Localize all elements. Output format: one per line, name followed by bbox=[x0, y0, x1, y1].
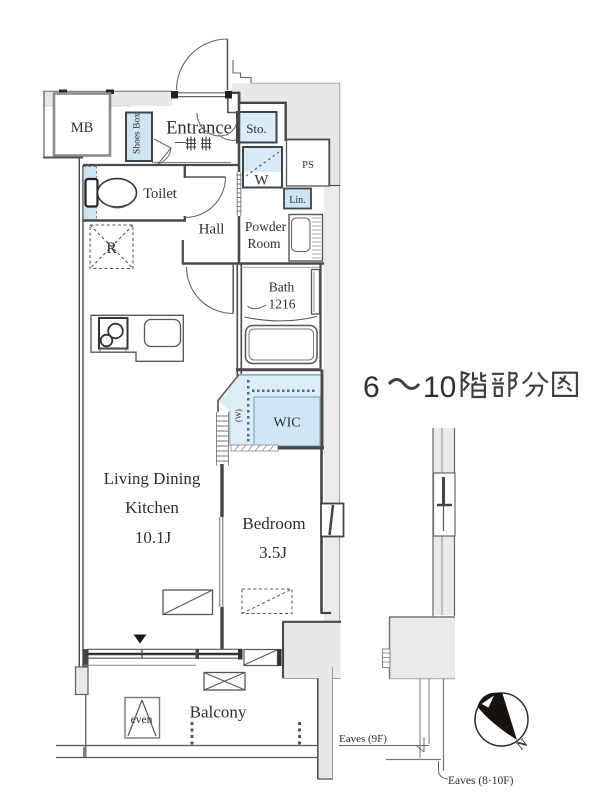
svg-text:Lin.: Lin. bbox=[289, 195, 305, 206]
svg-text:PS: PS bbox=[302, 160, 314, 171]
svg-text:Room: Room bbox=[247, 236, 281, 251]
svg-text:Bath: Bath bbox=[269, 280, 295, 295]
svg-text:Balcony: Balcony bbox=[190, 703, 247, 722]
svg-text:(W): (W) bbox=[234, 409, 243, 422]
svg-text:Sto.: Sto. bbox=[246, 121, 267, 136]
svg-text:even: even bbox=[131, 714, 153, 726]
svg-text:Toilet: Toilet bbox=[143, 186, 177, 202]
svg-text:W: W bbox=[254, 173, 269, 189]
svg-text:WIC: WIC bbox=[273, 416, 300, 431]
svg-text:Kitchen: Kitchen bbox=[125, 498, 179, 517]
svg-text:Eaves (8·10F): Eaves (8·10F) bbox=[448, 775, 514, 787]
svg-text:10: 10 bbox=[423, 371, 456, 404]
svg-text:10.1J: 10.1J bbox=[135, 528, 172, 547]
svg-text:Living Dining: Living Dining bbox=[104, 469, 201, 488]
svg-text:1216: 1216 bbox=[269, 297, 296, 312]
svg-text:MB: MB bbox=[71, 120, 94, 136]
svg-text:Eaves (9F): Eaves (9F) bbox=[339, 733, 387, 745]
svg-text:Powder: Powder bbox=[245, 219, 287, 234]
svg-text:Bedroom: Bedroom bbox=[242, 514, 305, 533]
svg-text:6: 6 bbox=[363, 371, 380, 404]
svg-text:Shoes Box: Shoes Box bbox=[133, 113, 143, 154]
svg-text:Hall: Hall bbox=[199, 222, 225, 238]
svg-text:R: R bbox=[106, 240, 117, 257]
svg-text:3.5J: 3.5J bbox=[259, 543, 287, 562]
